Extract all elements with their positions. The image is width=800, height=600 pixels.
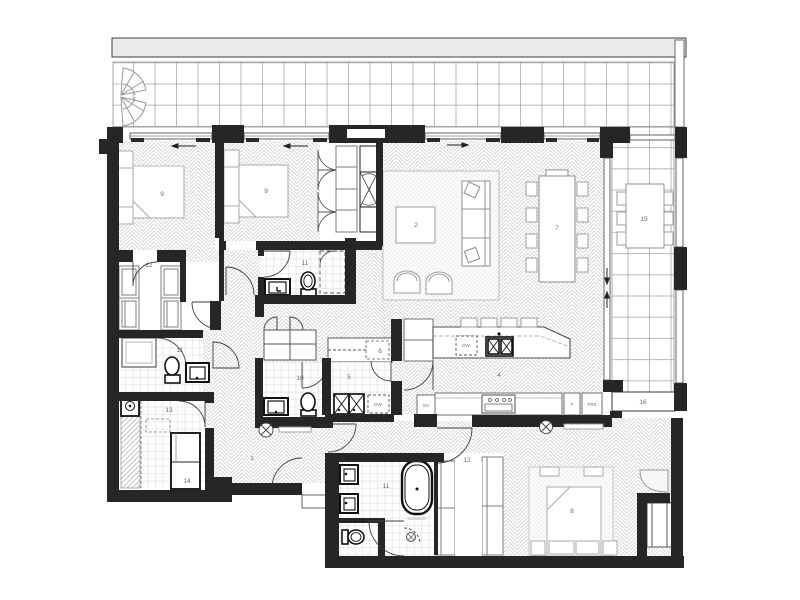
svg-text:5: 5 xyxy=(347,374,351,381)
svg-text:9: 9 xyxy=(160,191,164,198)
svg-text:6: 6 xyxy=(378,348,382,355)
svg-text:1: 1 xyxy=(250,455,254,462)
svg-text:11: 11 xyxy=(177,347,184,354)
svg-text:F: F xyxy=(571,402,574,407)
svg-text:11: 11 xyxy=(302,260,309,267)
svg-text:2: 2 xyxy=(414,222,418,229)
svg-text:4: 4 xyxy=(497,372,501,379)
svg-text:DW: DW xyxy=(462,343,470,348)
svg-text:15: 15 xyxy=(640,216,648,223)
svg-text:10: 10 xyxy=(296,375,304,382)
svg-text:8: 8 xyxy=(570,508,574,515)
svg-text:7: 7 xyxy=(555,225,559,232)
svg-text:OV: OV xyxy=(423,403,431,408)
svg-text:9: 9 xyxy=(264,188,268,195)
svg-text:16: 16 xyxy=(639,399,647,406)
svg-text:3: 3 xyxy=(367,187,371,194)
svg-text:12: 12 xyxy=(463,457,471,464)
svg-text:12: 12 xyxy=(145,262,153,269)
svg-text:DW: DW xyxy=(374,402,382,407)
svg-text:14: 14 xyxy=(183,478,191,485)
svg-text:FRZ: FRZ xyxy=(588,402,597,407)
svg-text:11: 11 xyxy=(383,483,390,490)
svg-text:13: 13 xyxy=(165,407,173,414)
